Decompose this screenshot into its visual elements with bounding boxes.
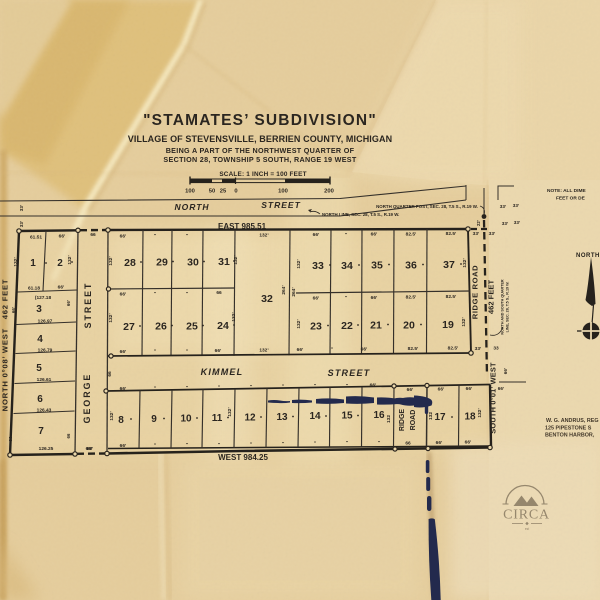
- svg-text:WEST 984.25: WEST 984.25: [218, 453, 268, 462]
- svg-text:31: 31: [218, 256, 230, 268]
- svg-text:28: 28: [124, 257, 136, 269]
- svg-text:82.5’: 82.5’: [446, 294, 457, 300]
- svg-text:RIDGE ROAD: RIDGE ROAD: [471, 265, 480, 320]
- svg-text:66’: 66’: [313, 232, 320, 238]
- svg-text:66’: 66’: [11, 307, 16, 313]
- svg-text:61.51: 61.51: [30, 235, 42, 241]
- svg-text:200: 200: [324, 189, 334, 195]
- svg-text:36: 36: [405, 260, 417, 272]
- svg-text:17: 17: [434, 412, 446, 423]
- svg-text:"STAMATES’ SUBDIVISION": "STAMATES’ SUBDIVISION": [143, 112, 377, 129]
- svg-text:66’: 66’: [120, 443, 127, 449]
- svg-text:21: 21: [370, 320, 382, 332]
- svg-text:66’: 66’: [215, 348, 222, 354]
- svg-text:66: 66: [90, 232, 96, 238]
- svg-text:35: 35: [371, 260, 383, 272]
- svg-text:BENTON HARBOR,: BENTON HARBOR,: [545, 433, 595, 439]
- svg-text:33’: 33’: [19, 205, 24, 211]
- svg-text:CIRCA: CIRCA: [503, 508, 550, 523]
- svg-text:2: 2: [57, 258, 63, 269]
- svg-text:66’: 66’: [438, 387, 445, 393]
- svg-text:66’: 66’: [465, 440, 472, 446]
- svg-text:37: 37: [443, 259, 455, 271]
- svg-text:66: 66: [8, 436, 13, 441]
- svg-text:1: 1: [30, 258, 36, 269]
- svg-text:66’: 66’: [297, 347, 304, 353]
- svg-text:NORTH 0°08’ WEST 462 FEET: NORTH 0°08’ WEST 462 FEET: [1, 279, 10, 412]
- svg-text:est: est: [525, 527, 529, 531]
- svg-text:34: 34: [341, 260, 353, 272]
- svg-text:W. G. ANDRUS, REG: W. G. ANDRUS, REG: [546, 418, 599, 424]
- svg-text:NORTH: NORTH: [174, 202, 209, 212]
- svg-text:22: 22: [341, 320, 353, 332]
- svg-text:132’: 132’: [109, 411, 115, 420]
- svg-text:RIDGE: RIDGE: [399, 409, 406, 432]
- svg-text:6: 6: [37, 394, 43, 405]
- svg-text:61.18: 61.18: [28, 286, 40, 292]
- svg-text:126.25: 126.25: [39, 446, 54, 452]
- svg-text:STREET: STREET: [83, 282, 93, 329]
- svg-text:STREET: STREET: [261, 200, 301, 210]
- svg-text:NORTH LINE, SEC. 28, T.5 S., R: NORTH LINE, SEC. 28, T.5 S., R.19 W.: [322, 212, 399, 217]
- svg-text:SCALE: 1 INCH = 100 FEET: SCALE: 1 INCH = 100 FEET: [219, 171, 306, 178]
- svg-text:KIMMEL: KIMMEL: [201, 367, 244, 377]
- svg-text:7: 7: [38, 426, 44, 437]
- svg-text:33’: 33’: [475, 346, 482, 352]
- svg-text:22’: 22’: [476, 220, 481, 226]
- svg-text:66’: 66’: [120, 386, 127, 392]
- svg-text:82.5’: 82.5’: [446, 231, 457, 237]
- svg-text:NOTE: ALL DIME: NOTE: ALL DIME: [547, 188, 586, 194]
- svg-text:462 FEET: 462 FEET: [487, 280, 496, 315]
- svg-text:8: 8: [118, 415, 124, 426]
- svg-text:66’: 66’: [361, 346, 368, 352]
- svg-text:ROAD: ROAD: [410, 410, 417, 431]
- svg-text:66: 66: [107, 371, 113, 377]
- svg-text:27: 27: [123, 321, 135, 333]
- svg-text:66’: 66’: [371, 232, 378, 238]
- svg-text:BEING A PART OF THE NORTHWEST: BEING A PART OF THE NORTHWEST QUARTER OF: [166, 146, 355, 155]
- svg-text:66’: 66’: [86, 446, 93, 452]
- svg-text:66’: 66’: [59, 234, 66, 240]
- svg-text:13: 13: [276, 412, 288, 423]
- svg-text:SECTION 28, TOWNSHIP 5 SOUTH,: SECTION 28, TOWNSHIP 5 SOUTH, RANGE 19 W…: [163, 155, 356, 164]
- svg-text:33’: 33’: [489, 231, 496, 237]
- svg-text:33’: 33’: [513, 203, 519, 208]
- svg-text:66’: 66’: [120, 349, 127, 355]
- svg-text:GEORGE: GEORGE: [82, 373, 92, 424]
- svg-text:132’: 132’: [67, 255, 73, 264]
- svg-text:33’: 33’: [514, 220, 520, 225]
- svg-text:30: 30: [187, 257, 199, 269]
- svg-text:9: 9: [151, 414, 157, 425]
- svg-text:33’: 33’: [502, 221, 508, 226]
- svg-text:264’: 264’: [281, 285, 287, 294]
- svg-text:19: 19: [442, 319, 454, 331]
- svg-text:33: 33: [493, 346, 499, 352]
- svg-text:66’: 66’: [120, 234, 127, 240]
- svg-text:132’: 132’: [227, 407, 233, 416]
- svg-text:66’: 66’: [120, 292, 127, 298]
- svg-text:33: 33: [312, 260, 324, 272]
- svg-text:132’: 132’: [296, 319, 302, 328]
- svg-text:16: 16: [373, 410, 385, 421]
- svg-text:25: 25: [186, 321, 198, 333]
- svg-text:18: 18: [464, 412, 476, 423]
- svg-text:66’: 66’: [371, 295, 378, 301]
- svg-text:14: 14: [309, 411, 321, 422]
- svg-text:82.5’: 82.5’: [406, 231, 417, 237]
- svg-text:11: 11: [212, 413, 223, 424]
- svg-text:33’: 33’: [500, 204, 506, 209]
- svg-text:132’: 132’: [231, 312, 237, 321]
- svg-text:20: 20: [403, 320, 415, 332]
- svg-text:82.5’: 82.5’: [406, 295, 417, 301]
- svg-text:VILLAGE OF STEVENSVILLE, BERRI: VILLAGE OF STEVENSVILLE, BERRIEN COUNTY,…: [128, 134, 392, 144]
- svg-text:12: 12: [244, 413, 256, 424]
- svg-text:66’: 66’: [313, 296, 320, 302]
- svg-text:23: 23: [310, 321, 322, 333]
- svg-text:264’: 264’: [291, 287, 297, 296]
- svg-text:25: 25: [220, 189, 227, 195]
- svg-text:125 PIPESTONE S: 125 PIPESTONE S: [545, 426, 592, 432]
- svg-text:50: 50: [209, 189, 215, 195]
- svg-text:STREET: STREET: [328, 368, 371, 378]
- svg-text:66: 66: [405, 441, 411, 447]
- svg-text:10: 10: [180, 414, 192, 425]
- svg-text:82.5’: 82.5’: [408, 346, 419, 352]
- svg-text:66’: 66’: [370, 382, 377, 388]
- svg-text:132’: 132’: [461, 317, 467, 326]
- svg-text:132’: 132’: [108, 256, 114, 265]
- svg-text:33’: 33’: [19, 221, 24, 227]
- svg-text:66’: 66’: [498, 386, 504, 391]
- svg-text:132’: 132’: [477, 408, 483, 417]
- svg-text:66’: 66’: [66, 300, 71, 306]
- svg-text:LINE, SEC. 28, T.5 S., R.19 W.: LINE, SEC. 28, T.5 S., R.19 W.: [506, 282, 510, 333]
- svg-text:82.5’: 82.5’: [448, 346, 459, 352]
- svg-text:100: 100: [278, 189, 288, 195]
- svg-text:24: 24: [217, 320, 229, 332]
- svg-text:66’: 66’: [407, 387, 414, 393]
- svg-text:66: 66: [216, 290, 222, 296]
- svg-text:5: 5: [36, 363, 42, 374]
- svg-text:4: 4: [37, 334, 43, 345]
- svg-text:132’: 132’: [108, 313, 114, 322]
- svg-text:26: 26: [155, 321, 167, 333]
- svg-text:NORTH: NORTH: [576, 253, 600, 259]
- svg-text:33’: 33’: [473, 231, 480, 237]
- svg-text:66’: 66’: [466, 386, 473, 392]
- svg-text:132’: 132’: [233, 255, 239, 264]
- svg-text:132: 132: [386, 415, 392, 423]
- svg-text:SOUTH 0°01’ WEST: SOUTH 0°01’ WEST: [489, 362, 498, 434]
- svg-text:(127.18: (127.18: [35, 295, 52, 301]
- svg-text:NORTH QUARTER POST, SEC. 28, T: NORTH QUARTER POST, SEC. 28, T.5 S., R.1…: [376, 204, 478, 209]
- svg-text:0: 0: [234, 189, 237, 195]
- svg-text:32: 32: [261, 293, 273, 305]
- svg-text:FEET OR DE: FEET OR DE: [556, 196, 586, 202]
- svg-text:132’: 132’: [462, 258, 468, 267]
- svg-text:29: 29: [156, 257, 168, 269]
- svg-text:132: 132: [428, 412, 434, 420]
- svg-text:132’: 132’: [13, 257, 19, 266]
- svg-text:132’: 132’: [296, 259, 302, 268]
- svg-text:15: 15: [341, 411, 353, 422]
- svg-text:66: 66: [66, 433, 71, 438]
- svg-text:NORTH AND SOUTH QUARTER: NORTH AND SOUTH QUARTER: [501, 279, 505, 335]
- svg-text:66’: 66’: [436, 440, 443, 446]
- svg-text:132’: 132’: [259, 348, 268, 354]
- svg-text:100: 100: [185, 189, 195, 195]
- svg-text:132’: 132’: [259, 233, 268, 239]
- svg-text:66’: 66’: [58, 285, 65, 291]
- svg-text:3: 3: [36, 304, 42, 315]
- svg-text:66’: 66’: [503, 368, 508, 374]
